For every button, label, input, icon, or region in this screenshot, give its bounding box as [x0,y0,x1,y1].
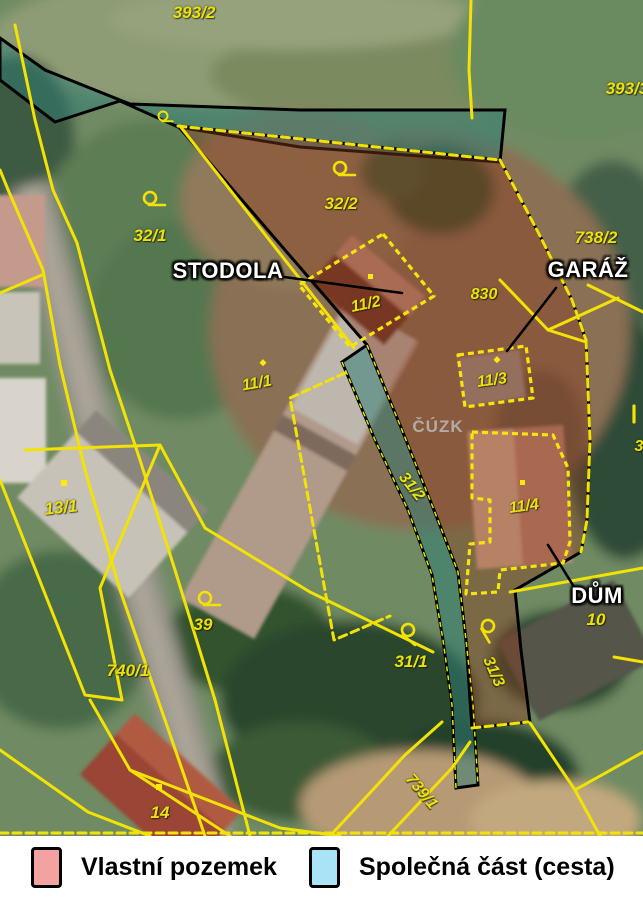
common-path-swatch [309,847,340,888]
cuzk-watermark: ČÚZK [412,417,463,437]
own-parcel-label: Vlastní pozemek [81,853,277,882]
cadastral-map-screenshot: 393/2 393/3 32/1 32/2 738/2 830 11/2 11/… [0,0,643,900]
legend-item-common-path: Společná část (cesta) [309,847,615,888]
legend-item-own-parcel: Vlastní pozemek [31,847,277,888]
annotation-garaz: GARÁŽ [548,257,629,283]
own-parcel-swatch [31,847,62,888]
map-image: 393/2 393/3 32/1 32/2 738/2 830 11/2 11/… [0,0,643,836]
annotation-stodola: STODOLA [173,258,284,284]
annotation-dum: DŮM [571,583,623,609]
map-canvas [0,0,643,836]
legend-bar: Vlastní pozemek Společná část (cesta) [0,836,643,900]
common-path-label: Společná část (cesta) [359,853,615,882]
